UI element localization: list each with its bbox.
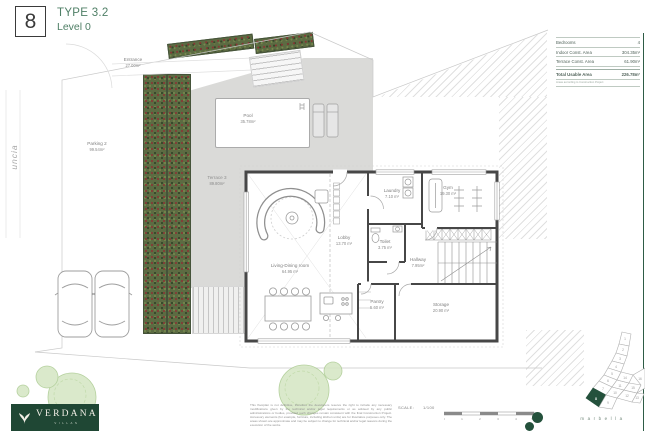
svg-text:2: 2 xyxy=(622,348,624,352)
parking-label: Parking 299.54m² xyxy=(87,141,106,153)
emblem-dot-icon xyxy=(525,422,534,431)
svg-text:1: 1 xyxy=(624,337,626,341)
svg-text:16: 16 xyxy=(638,377,642,381)
table-row-total: Total Usable Area226.78m² xyxy=(556,69,640,80)
car-icon xyxy=(55,271,95,337)
summary-table: Bedrooms4 Indoor Const. Area304.35m² Ter… xyxy=(556,37,640,87)
scale-label: SCALE: xyxy=(398,405,414,410)
svg-text:3: 3 xyxy=(497,417,499,421)
svg-text:2: 2 xyxy=(479,417,481,421)
plan-linework xyxy=(0,0,647,431)
svg-text:4: 4 xyxy=(515,417,517,421)
svg-text:1: 1 xyxy=(461,417,463,421)
logo-title: VERDANA xyxy=(36,410,98,420)
room-label-storage: Storage20.90 m² xyxy=(433,302,449,314)
emblem-dot-icon xyxy=(532,412,543,423)
street-name-label: uncia xyxy=(9,127,19,187)
scale-bar: 01 23 45 m xyxy=(444,409,544,423)
room-label-pantry: Pantry5.60 m² xyxy=(370,299,384,311)
svg-text:6: 6 xyxy=(607,379,609,383)
svg-text:9: 9 xyxy=(607,401,609,405)
svg-text:15: 15 xyxy=(631,386,635,390)
table-note: Areas according to Construction Project xyxy=(556,80,640,87)
table-row: Bedrooms4 xyxy=(556,37,640,48)
dining-table xyxy=(265,296,311,321)
svg-text:8: 8 xyxy=(595,397,597,401)
room-label-gym: Gym19.30 m² xyxy=(440,185,456,197)
svg-text:14: 14 xyxy=(623,376,627,380)
house xyxy=(240,166,503,347)
floorplan-sheet: 8 TYPE 3.2 Level 0 xyxy=(0,0,647,431)
pool-label: Pool35.78m² xyxy=(240,113,255,125)
room-label-lobby: Lobby13.70 m² xyxy=(336,235,352,247)
svg-text:10: 10 xyxy=(613,391,617,395)
room-label-hallway: Hallway7.95m² xyxy=(410,257,426,269)
svg-text:3: 3 xyxy=(619,357,621,361)
room-label-toilet: Toilet3.75 m² xyxy=(378,239,392,251)
scale-value: 1/100 xyxy=(423,405,435,410)
svg-text:11: 11 xyxy=(618,384,622,388)
table-row: Indoor Const. Area304.35m² xyxy=(556,48,640,58)
svg-text:12: 12 xyxy=(625,394,629,398)
laurel-leaf-icon xyxy=(18,410,31,425)
svg-text:4: 4 xyxy=(615,365,617,369)
logo-subtitle: VILLAS xyxy=(36,421,98,425)
terrace-label: Terrace 389.80m² xyxy=(207,175,226,187)
table-row: Terrace Const. Area61.90m² xyxy=(556,57,640,67)
pool-loungers xyxy=(300,103,338,137)
room-label-living: Living-Dining room64.95 m² xyxy=(271,263,309,275)
entrance-label: Entrance27.00m² xyxy=(124,57,142,69)
keyplan: 12 34 56 7 8 910 1112 1314 1516 xyxy=(585,330,645,428)
armchair xyxy=(315,190,328,203)
room-label-laundry: Laundry7.10 m² xyxy=(384,188,401,200)
svg-text:5: 5 xyxy=(611,372,613,376)
pool-ladder-icon xyxy=(300,103,304,110)
svg-text:13: 13 xyxy=(635,396,639,400)
svg-text:0: 0 xyxy=(444,417,445,421)
footer-disclaimer: This floorplan is not definitive, theref… xyxy=(250,404,392,428)
svg-text:7: 7 xyxy=(602,387,604,391)
parked-cars xyxy=(55,271,132,337)
car-icon xyxy=(92,271,132,337)
brand-logo: VERDANA VILLAS xyxy=(11,404,99,431)
location-text: marbella xyxy=(563,416,643,421)
